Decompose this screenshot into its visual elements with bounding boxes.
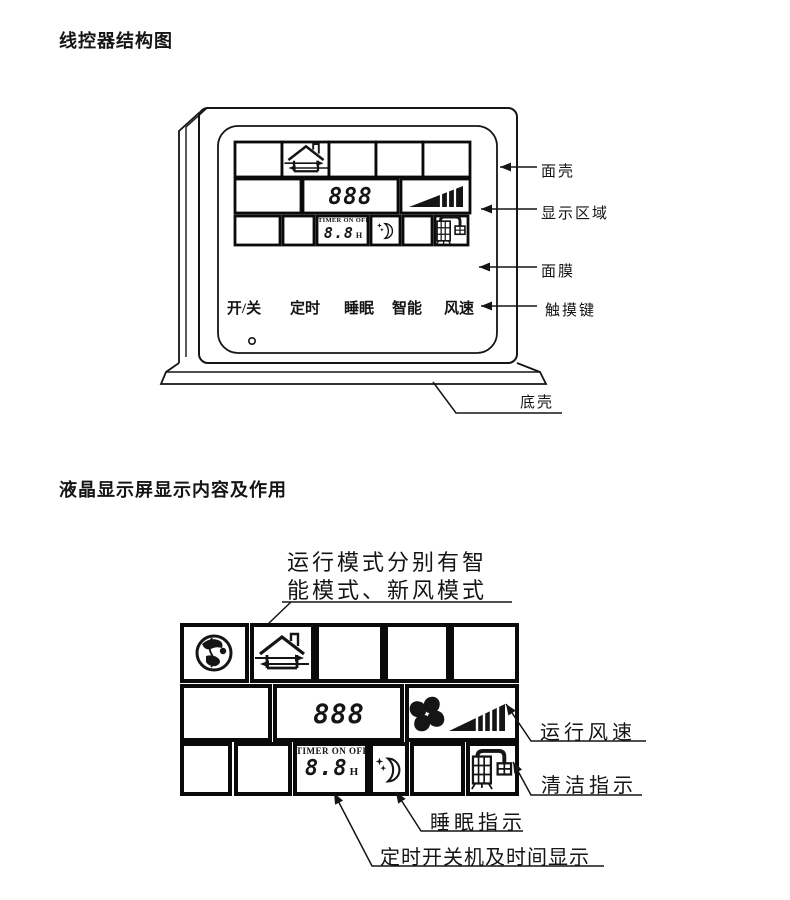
touch-key-sleep: 睡眠 <box>336 297 382 318</box>
callout-clean: 清洁指示 <box>541 769 637 798</box>
lcd-mode-digits: 888 <box>303 184 398 210</box>
callout-timer-display: 定时开关机及时间显示 <box>380 841 590 870</box>
callout-sleep: 睡眠指示 <box>430 806 526 835</box>
diagram-linework <box>0 0 790 900</box>
lcd-timer-caption: TIMER ON OFF <box>296 746 367 756</box>
lcd-timer-unit: H <box>356 231 362 240</box>
touch-key-smart: 智能 <box>384 297 430 318</box>
lcd-mode-digits: 888 <box>276 699 402 730</box>
lcd-timer-unit: H <box>350 766 359 778</box>
touch-key-fanspeed: 风速 <box>436 297 482 318</box>
touch-key-onoff: 开/关 <box>221 297 267 318</box>
lcd-timer-readout: 8.8 H <box>318 224 368 242</box>
manual-page: 线控器结构图 开/关 定时 睡眠 智能 风速 面壳 显示区域 面膜 触摸键 底壳… <box>0 0 790 900</box>
callout-front-shell: 面壳 <box>541 160 575 181</box>
lcd-timer-readout: 8.8 H <box>296 756 367 781</box>
callout-touch-keys: 触摸键 <box>545 299 596 320</box>
callout-display-area: 显示区域 <box>541 202 609 223</box>
lcd-timer-digits: 8.8 <box>305 756 348 781</box>
touch-key-timer: 定时 <box>282 297 328 318</box>
power-led-icon <box>249 338 255 344</box>
lcd-timer-digits: 8.8 <box>324 224 354 242</box>
section1-title: 线控器结构图 <box>59 27 173 53</box>
callout-membrane: 面膜 <box>541 260 575 281</box>
mode-note-line2: 能模式、新风模式 <box>287 573 487 605</box>
callout-fan-speed: 运行风速 <box>540 716 636 745</box>
callout-bottom-shell: 底壳 <box>520 391 554 412</box>
lcd-timer-caption: TIMER ON OFF <box>318 217 368 224</box>
section2-title: 液晶显示屏显示内容及作用 <box>59 476 287 502</box>
